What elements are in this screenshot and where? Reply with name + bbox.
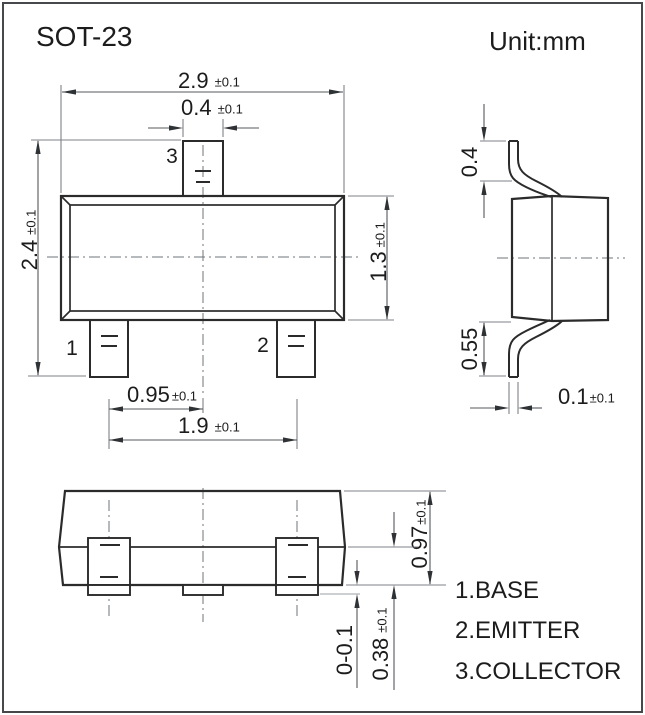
page-title: SOT-23 xyxy=(36,21,132,52)
unit-label: Unit:mm xyxy=(489,26,586,56)
dim-body-width-label: 2.9±0.1 xyxy=(178,68,240,93)
top-view: 3 1 2 2.9±0.1 0.4±0.1 xyxy=(17,68,394,449)
front-view: 0.97±0.1 0.38±0.1 0-0.1 xyxy=(59,488,446,690)
dim-lead-bottom: 0.55 xyxy=(457,322,511,376)
dim-lead-thickness-label: 0.1±0.1 xyxy=(558,384,615,409)
pin1-front-lead xyxy=(88,538,130,595)
dim-pin-span-label: 1.9±0.1 xyxy=(178,413,240,438)
dim-pin-width: 0.4±0.1 xyxy=(148,95,259,137)
pin3-number: 3 xyxy=(166,145,178,168)
dim-overall-height: 2.4±0.1 xyxy=(17,140,181,376)
legend-item-emitter: 2.EMITTER xyxy=(455,617,580,644)
dim-body-height: 1.3±0.1 xyxy=(348,196,394,320)
pin2-front-lead xyxy=(276,538,318,595)
datasheet-page: SOT-23 Unit:mm xyxy=(0,0,645,715)
legend-item-base: 1.BASE xyxy=(455,577,539,604)
pin2-number: 2 xyxy=(257,334,269,357)
pin3-front-foot xyxy=(183,585,223,595)
dim-lead-top-label: 0.4 xyxy=(457,147,482,178)
pin1-number: 1 xyxy=(66,337,78,360)
dim-standoff: 0-0.1 xyxy=(320,560,360,688)
sot23-package-drawing: SOT-23 Unit:mm xyxy=(0,0,645,715)
side-view: 0.4 0.55 0.1±0.1 xyxy=(457,104,625,414)
dim-lead-bottom-label: 0.55 xyxy=(457,328,482,371)
top-lead-profile xyxy=(509,141,562,197)
dim-lead-thickness: 0.1±0.1 xyxy=(470,382,615,414)
legend-item-collector: 3.COLLECTOR xyxy=(455,658,621,685)
dim-lead-top: 0.4 xyxy=(457,104,512,218)
dim-lead-height-label: 0.38±0.1 xyxy=(368,607,393,680)
pin2-lead xyxy=(277,320,315,377)
dim-standoff-label: 0-0.1 xyxy=(332,625,357,675)
dim-body-height-label: 1.3±0.1 xyxy=(366,222,391,282)
bottom-lead-profile xyxy=(509,320,562,377)
pin1-lead xyxy=(90,320,128,377)
dim-body-thickness-label: 0.97±0.1 xyxy=(407,499,432,568)
dim-overall-height-label: 2.4±0.1 xyxy=(17,210,42,271)
pin-legend: 1.BASE 2.EMITTER 3.COLLECTOR xyxy=(455,577,621,685)
page-border xyxy=(3,3,642,712)
dim-pin-width-label: 0.4±0.1 xyxy=(181,95,243,120)
dim-pin-pitch-label: 0.95±0.1 xyxy=(127,382,197,407)
